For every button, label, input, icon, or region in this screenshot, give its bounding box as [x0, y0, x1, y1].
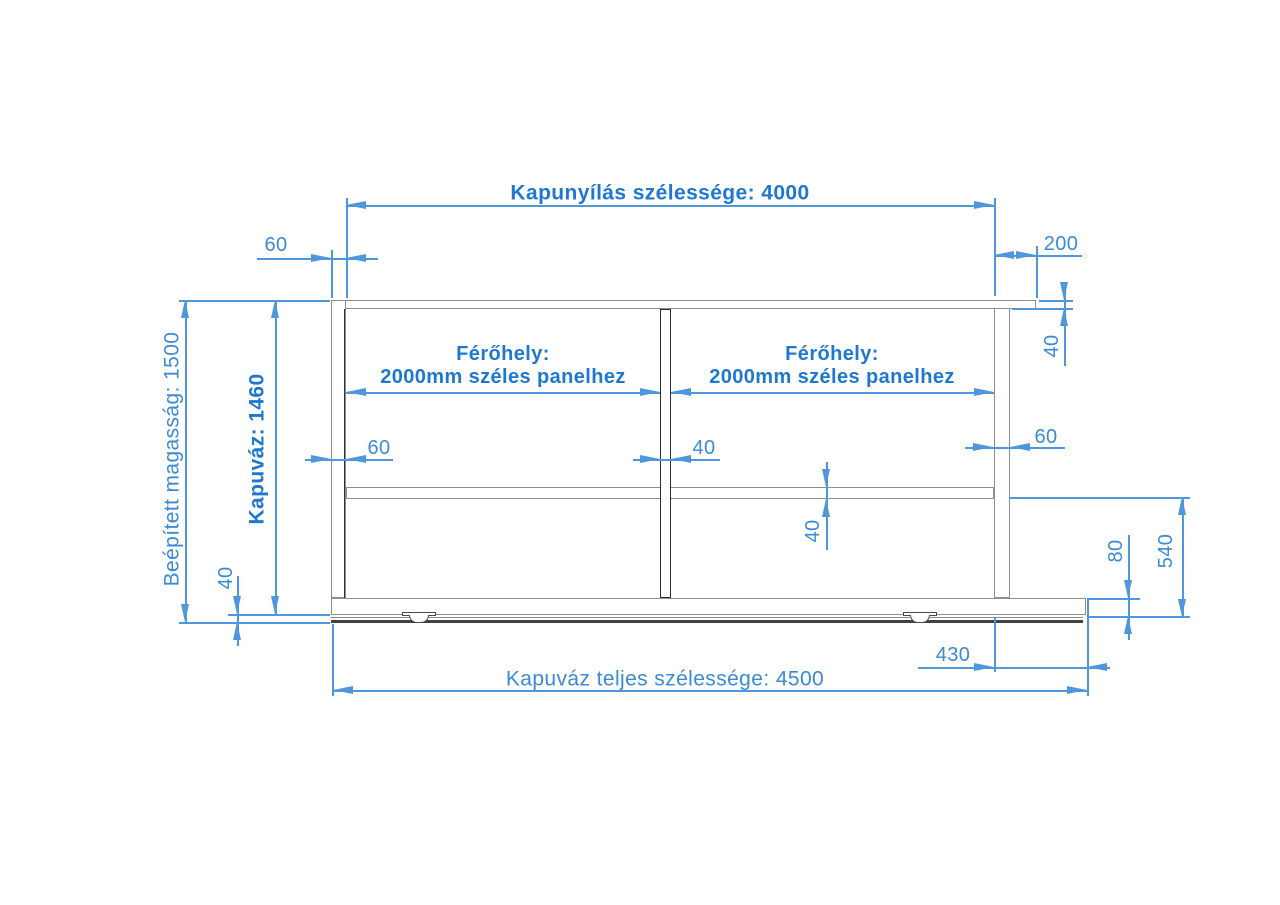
installed-height-label: Beépített magasság: 1500: [162, 332, 183, 587]
arrowhead: [822, 469, 830, 487]
opening-width-label: Kapunyílás szélessége: 4000: [510, 183, 809, 204]
arrowhead: [640, 455, 660, 463]
arrowhead: [1124, 616, 1132, 634]
extension-line: [1087, 598, 1089, 696]
roller-wheel: [910, 615, 930, 623]
extension-line: [1010, 497, 1190, 499]
arrowhead: [822, 499, 830, 517]
arrowhead: [1010, 443, 1030, 451]
arrowhead: [671, 455, 691, 463]
extension-line: [994, 198, 996, 296]
arrowhead: [271, 300, 279, 318]
arrowhead: [346, 201, 366, 209]
lower-section-height-label: 540: [1156, 534, 1176, 569]
roller-carriage-left: [402, 611, 436, 624]
arrowhead: [271, 596, 279, 614]
arrowhead: [333, 686, 353, 694]
left-post-width-top-label: 60: [264, 235, 287, 255]
arrowhead: [1178, 497, 1186, 515]
arrowhead: [1067, 686, 1087, 694]
arrowhead: [1016, 251, 1036, 259]
roller-wheel: [409, 615, 429, 623]
extension-line: [994, 617, 996, 672]
dimension-line-panel-space-right: [671, 392, 994, 394]
ground-track: [331, 620, 1083, 623]
extension-line: [346, 198, 348, 298]
mid-post-width-label: 40: [692, 438, 715, 458]
top-rail: [331, 300, 1036, 309]
roller-carriage-right: [903, 611, 937, 624]
extension-line: [1036, 246, 1038, 298]
right-post: [994, 308, 1010, 598]
arrowhead: [346, 254, 366, 262]
arrowhead: [973, 443, 993, 451]
arrowhead: [181, 300, 189, 318]
tail-length-label: 200: [1044, 234, 1079, 254]
panel-space-left-label: Férőhely: 2000mm széles panelhez: [380, 343, 626, 389]
arrowhead: [640, 388, 660, 396]
extension-line: [228, 614, 330, 616]
extension-line: [179, 622, 330, 624]
mid-rail-height-label: 40: [803, 519, 823, 542]
total-width-label: Kapuváz teljes szélessége: 4500: [506, 669, 824, 690]
arrowhead: [311, 254, 331, 262]
bottom-clearance-label: 40: [216, 566, 236, 589]
panel-space-line2: 2000mm széles panelhez: [380, 366, 626, 388]
extension-line: [1089, 598, 1140, 600]
extension-line: [179, 300, 330, 302]
arrowhead: [994, 251, 1014, 259]
dimension-line-installed-height: [185, 300, 187, 622]
arrowhead: [311, 455, 331, 463]
panel-space-line1: Férőhely:: [785, 343, 879, 365]
arrowhead: [671, 388, 691, 396]
arrowhead: [1060, 308, 1068, 326]
dimension-line-frame-height: [275, 300, 277, 614]
mid-post: [660, 309, 671, 598]
extension-line: [1089, 616, 1190, 618]
arrowhead: [346, 388, 366, 396]
arrowhead: [1178, 599, 1186, 617]
left-post-width-label: 60: [367, 438, 390, 458]
arrowhead: [233, 596, 241, 614]
right-post-width-label: 60: [1034, 427, 1057, 447]
arrowhead: [1124, 580, 1132, 598]
ground-track-top-line: [331, 617, 1083, 618]
gate-technical-drawing: Kapunyílás szélessége: 4000 60 200 40 Be…: [0, 0, 1280, 905]
arrowhead: [1087, 663, 1107, 671]
bottom-tail-length-label: 430: [936, 645, 971, 665]
frame-height-label: Kapuváz: 1460: [247, 373, 268, 524]
arrowhead: [974, 201, 994, 209]
top-rail-height-label: 40: [1042, 334, 1062, 357]
bottom-rail-height-label: 80: [1106, 539, 1126, 562]
dimension-line-panel-space-left: [346, 392, 660, 394]
arrowhead: [181, 604, 189, 622]
panel-space-line1: Férőhely:: [456, 343, 550, 365]
panel-space-right-label: Férőhely: 2000mm széles panelhez: [709, 343, 955, 389]
arrowhead: [974, 388, 994, 396]
bottom-rail: [331, 598, 1086, 615]
dimension-line-430: [918, 667, 1110, 669]
left-post-inner-line: [344, 309, 345, 598]
extension-line: [1039, 300, 1073, 302]
arrowhead: [974, 663, 994, 671]
panel-space-line2: 2000mm széles panelhez: [709, 366, 955, 388]
arrowhead: [346, 455, 366, 463]
arrowhead: [233, 622, 241, 640]
arrowhead: [1060, 282, 1068, 300]
dimension-line-opening-width: [346, 205, 994, 207]
